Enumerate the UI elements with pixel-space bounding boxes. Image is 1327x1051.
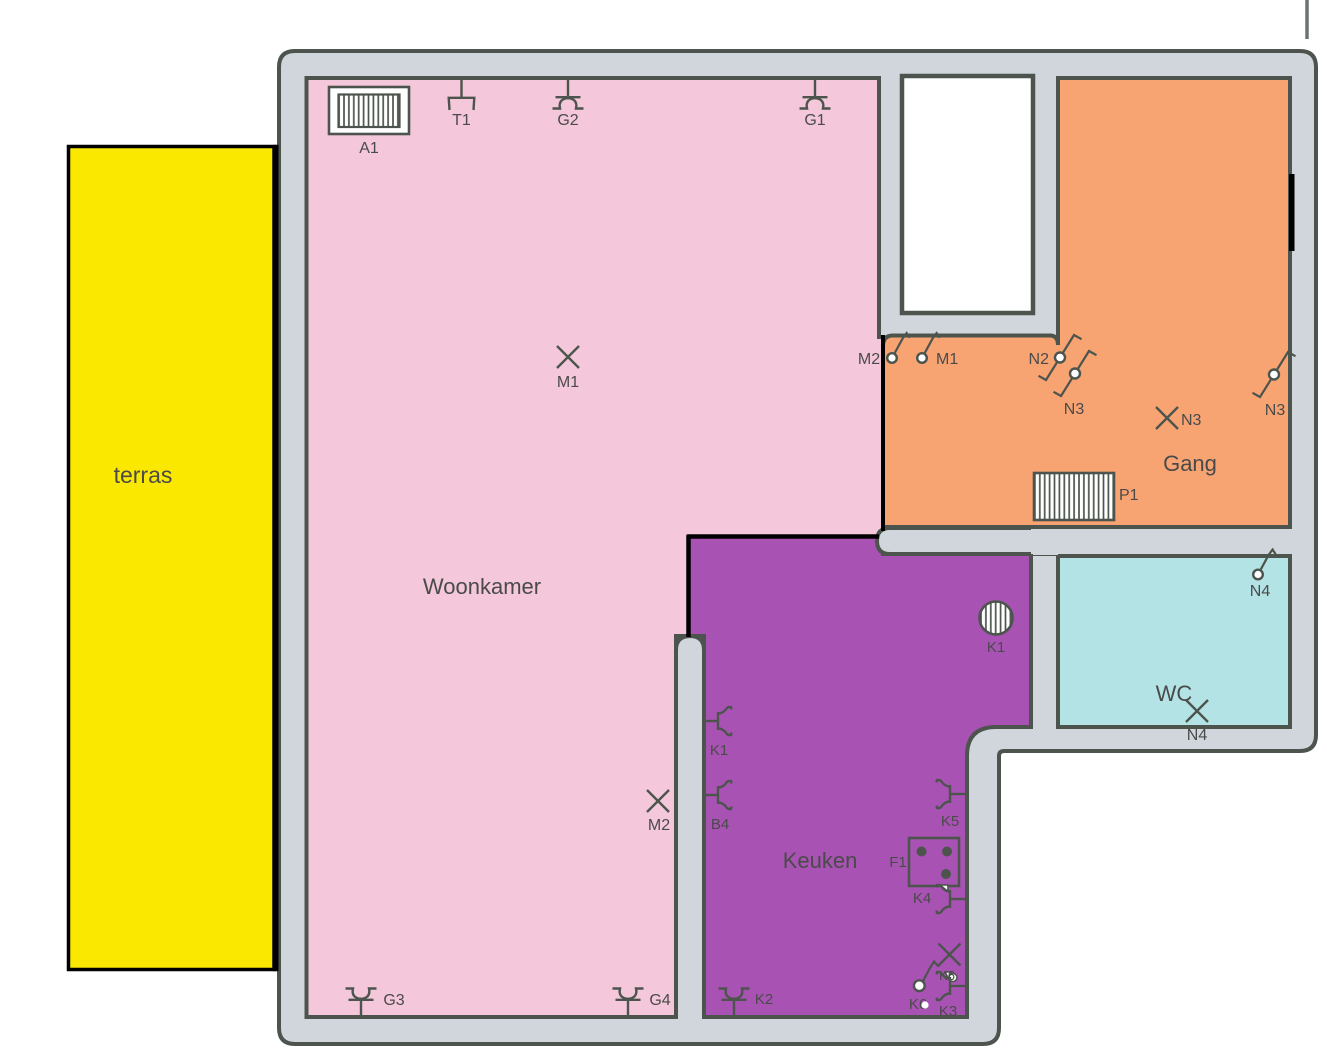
svg-text:M1: M1 — [557, 374, 579, 391]
svg-text:Woonkamer: Woonkamer — [423, 574, 541, 599]
svg-text:K1: K1 — [710, 742, 728, 759]
svg-text:N2: N2 — [1029, 351, 1050, 368]
svg-text:N3: N3 — [1064, 401, 1085, 418]
svg-text:Gang: Gang — [1163, 451, 1217, 476]
svg-text:G1: G1 — [804, 112, 825, 129]
svg-text:K5: K5 — [941, 813, 959, 830]
svg-text:K4: K4 — [913, 890, 931, 907]
svg-text:N3: N3 — [1181, 412, 1202, 429]
svg-text:M2: M2 — [648, 817, 670, 834]
svg-text:K3: K3 — [939, 1003, 957, 1020]
svg-text:K1: K1 — [987, 639, 1005, 656]
svg-text:A1: A1 — [359, 140, 379, 157]
svg-text:M2: M2 — [858, 351, 880, 368]
svg-text:K6: K6 — [939, 968, 955, 983]
svg-text:N3: N3 — [1265, 402, 1286, 419]
svg-text:P1: P1 — [1119, 487, 1139, 504]
svg-text:K2: K2 — [755, 991, 773, 1008]
svg-text:G4: G4 — [649, 992, 670, 1009]
svg-text:G2: G2 — [557, 112, 578, 129]
svg-text:Keuken: Keuken — [783, 848, 858, 873]
svg-text:F1: F1 — [889, 854, 907, 871]
svg-text:N4: N4 — [1187, 727, 1208, 744]
svg-text:N4: N4 — [1250, 583, 1271, 600]
svg-text:terras: terras — [114, 462, 173, 488]
svg-text:B4: B4 — [711, 816, 729, 833]
svg-text:M1: M1 — [936, 351, 958, 368]
svg-text:T1: T1 — [452, 112, 471, 129]
svg-text:G3: G3 — [383, 992, 404, 1009]
